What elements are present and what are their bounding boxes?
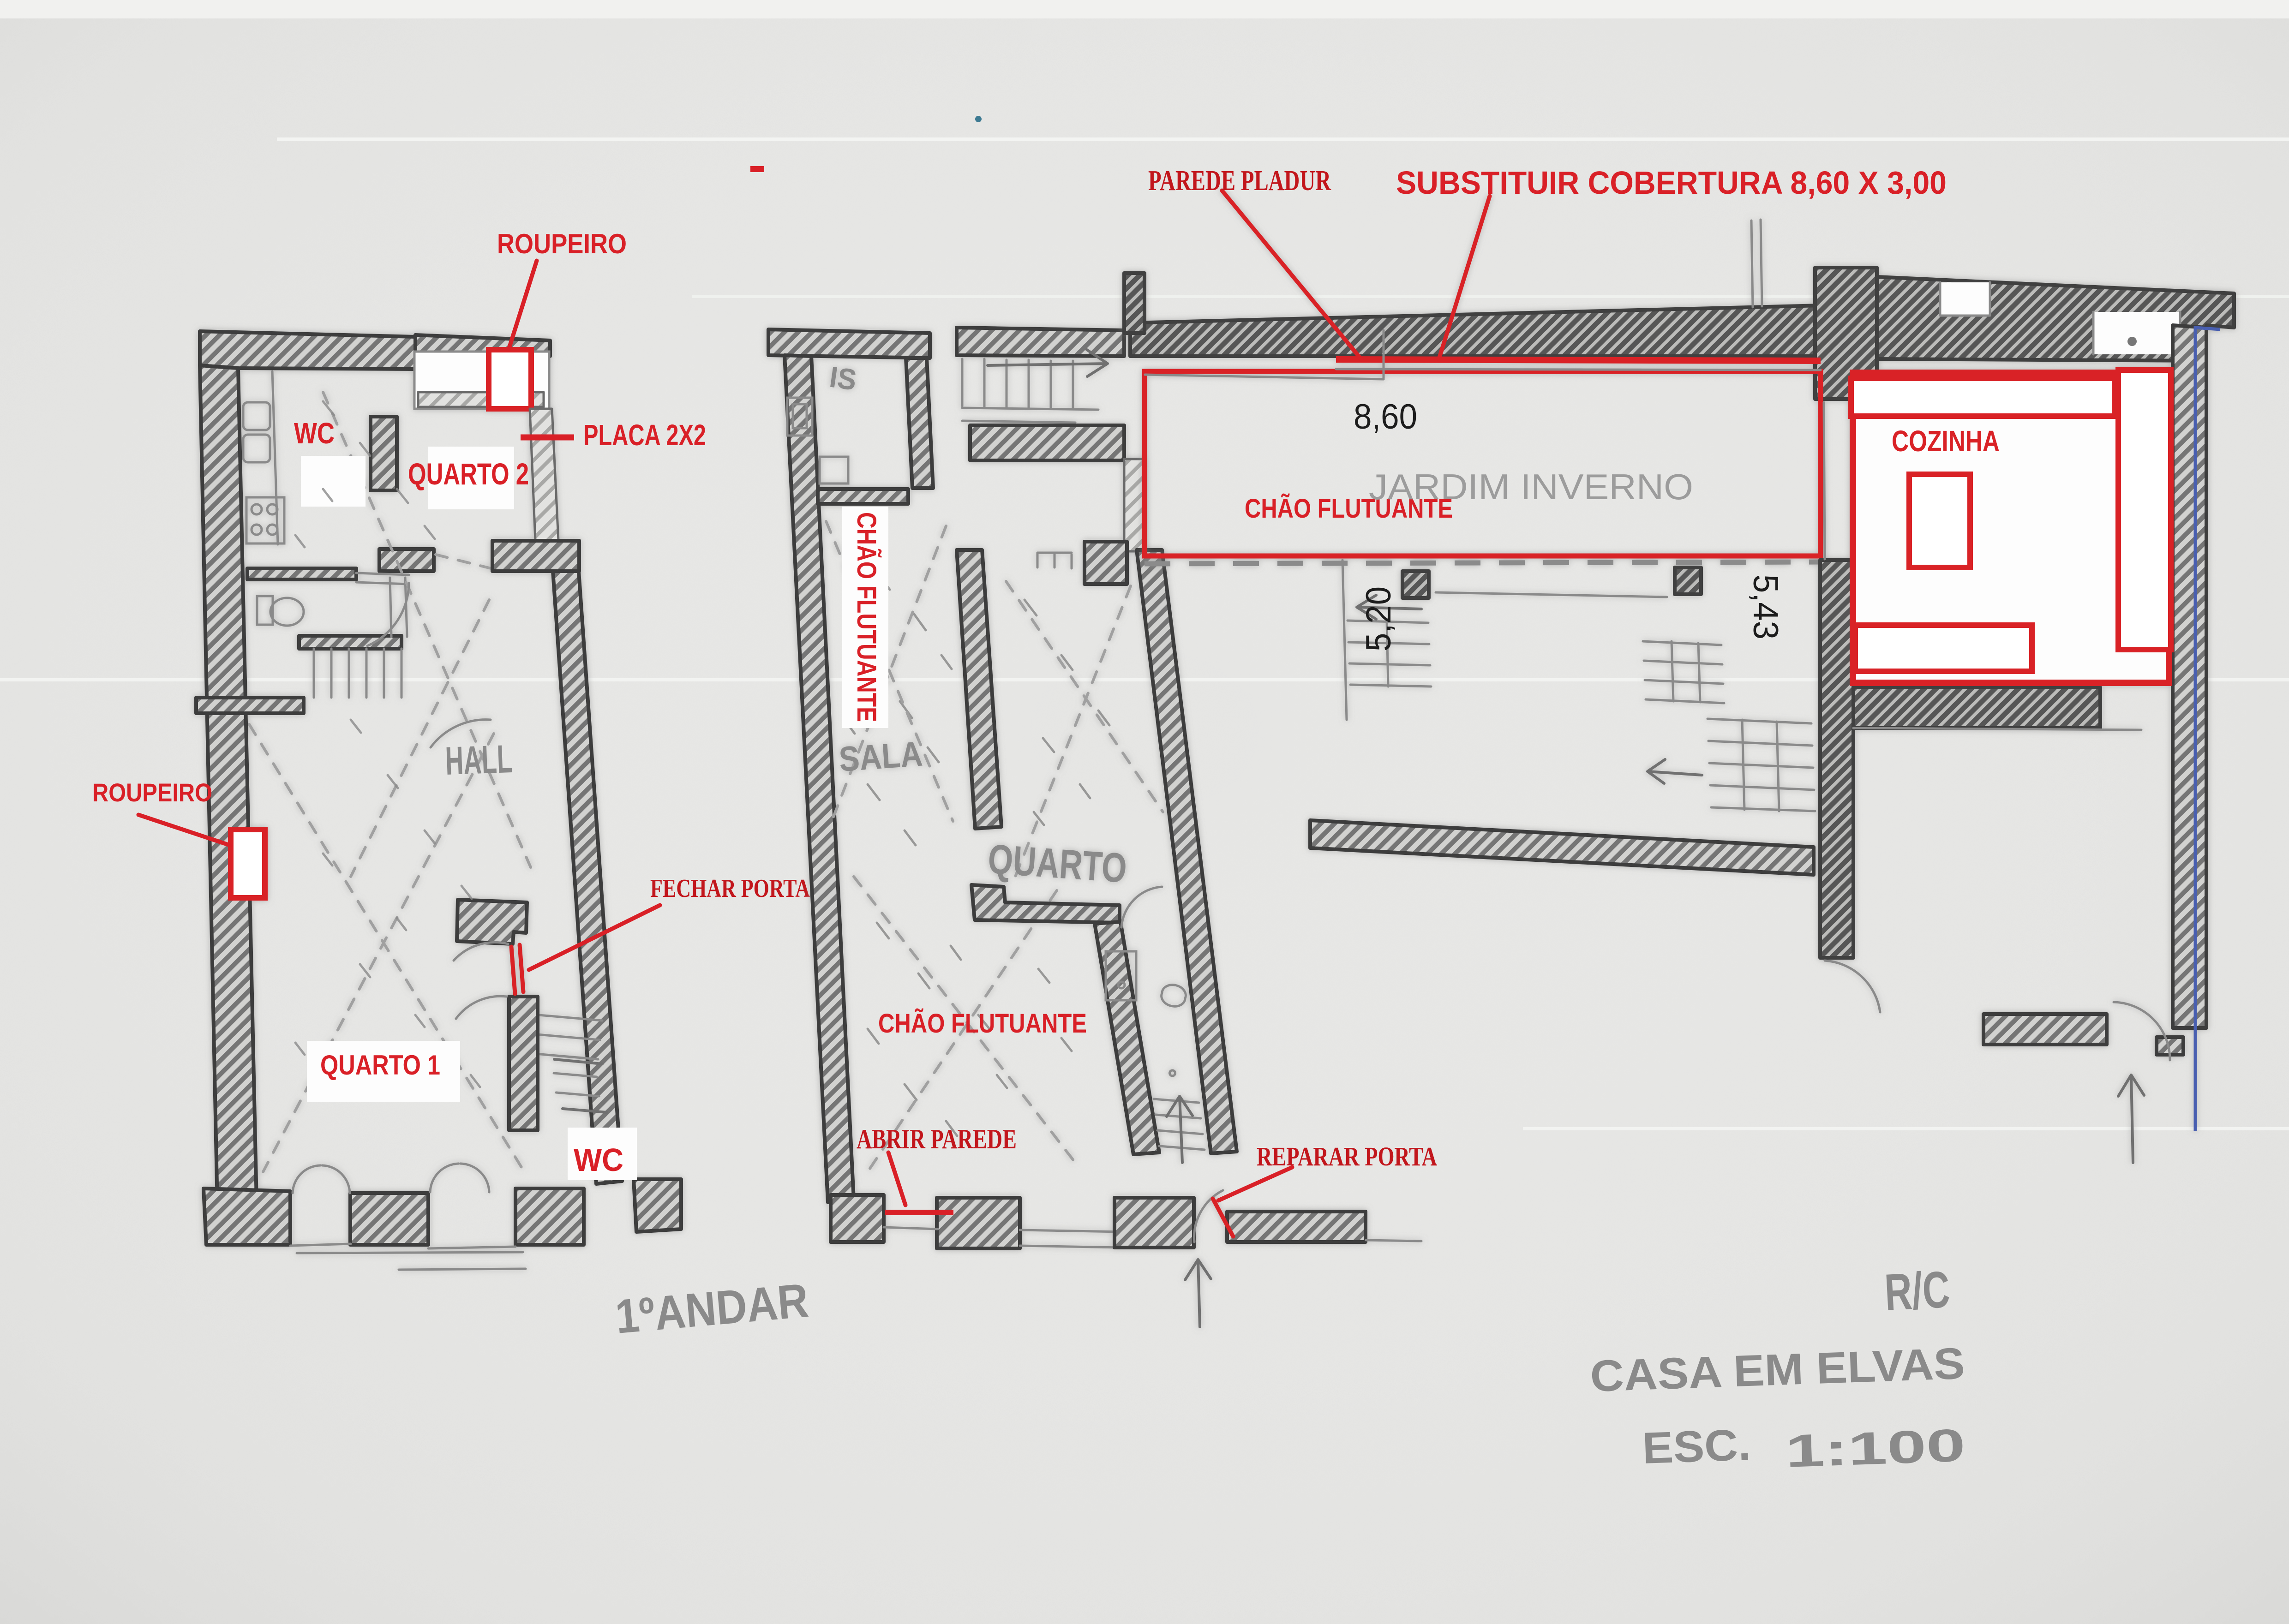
svg-text:SUBSTITUIR COBERTURA 8,60 X 3,: SUBSTITUIR COBERTURA 8,60 X 3,00 xyxy=(1396,165,1947,201)
svg-text:5,43: 5,43 xyxy=(1746,574,1785,639)
svg-text:ESC.: ESC. xyxy=(1642,1420,1752,1473)
svg-text:8,60: 8,60 xyxy=(1354,397,1417,436)
svg-text:COZINHA: COZINHA xyxy=(1892,424,2000,458)
svg-text:QUARTO 2: QUARTO 2 xyxy=(408,457,529,491)
svg-text:FECHAR PORTA: FECHAR PORTA xyxy=(650,874,810,903)
svg-text:ROUPEIRO: ROUPEIRO xyxy=(497,228,627,259)
svg-text:QUARTO 1: QUARTO 1 xyxy=(320,1050,440,1081)
svg-text:1:100: 1:100 xyxy=(1785,1419,1966,1477)
svg-text:ABRIR PAREDE: ABRIR PAREDE xyxy=(857,1124,1017,1154)
svg-text:WC: WC xyxy=(294,417,335,450)
svg-text:ROUPEIRO: ROUPEIRO xyxy=(92,778,212,807)
svg-text:PLACA 2X2: PLACA 2X2 xyxy=(583,418,706,452)
svg-text:QUARTO: QUARTO xyxy=(987,836,1128,892)
svg-text:R/C: R/C xyxy=(1883,1260,1951,1321)
svg-text:HALL: HALL xyxy=(444,737,513,783)
svg-text:CHÃO FLUTUANTE: CHÃO FLUTUANTE xyxy=(851,512,881,722)
svg-text:REPARAR PORTA: REPARAR PORTA xyxy=(1257,1141,1437,1171)
svg-text:CHÃO FLUTUANTE: CHÃO FLUTUANTE xyxy=(878,1009,1087,1039)
svg-text:5,20: 5,20 xyxy=(1359,586,1398,651)
svg-text:IS: IS xyxy=(827,360,858,397)
svg-text:JARDIM INVERNO: JARDIM INVERNO xyxy=(1369,466,1693,507)
svg-text:WC: WC xyxy=(574,1142,623,1178)
svg-text:PAREDE PLADUR: PAREDE PLADUR xyxy=(1148,165,1331,197)
svg-text:SALA: SALA xyxy=(838,734,923,779)
